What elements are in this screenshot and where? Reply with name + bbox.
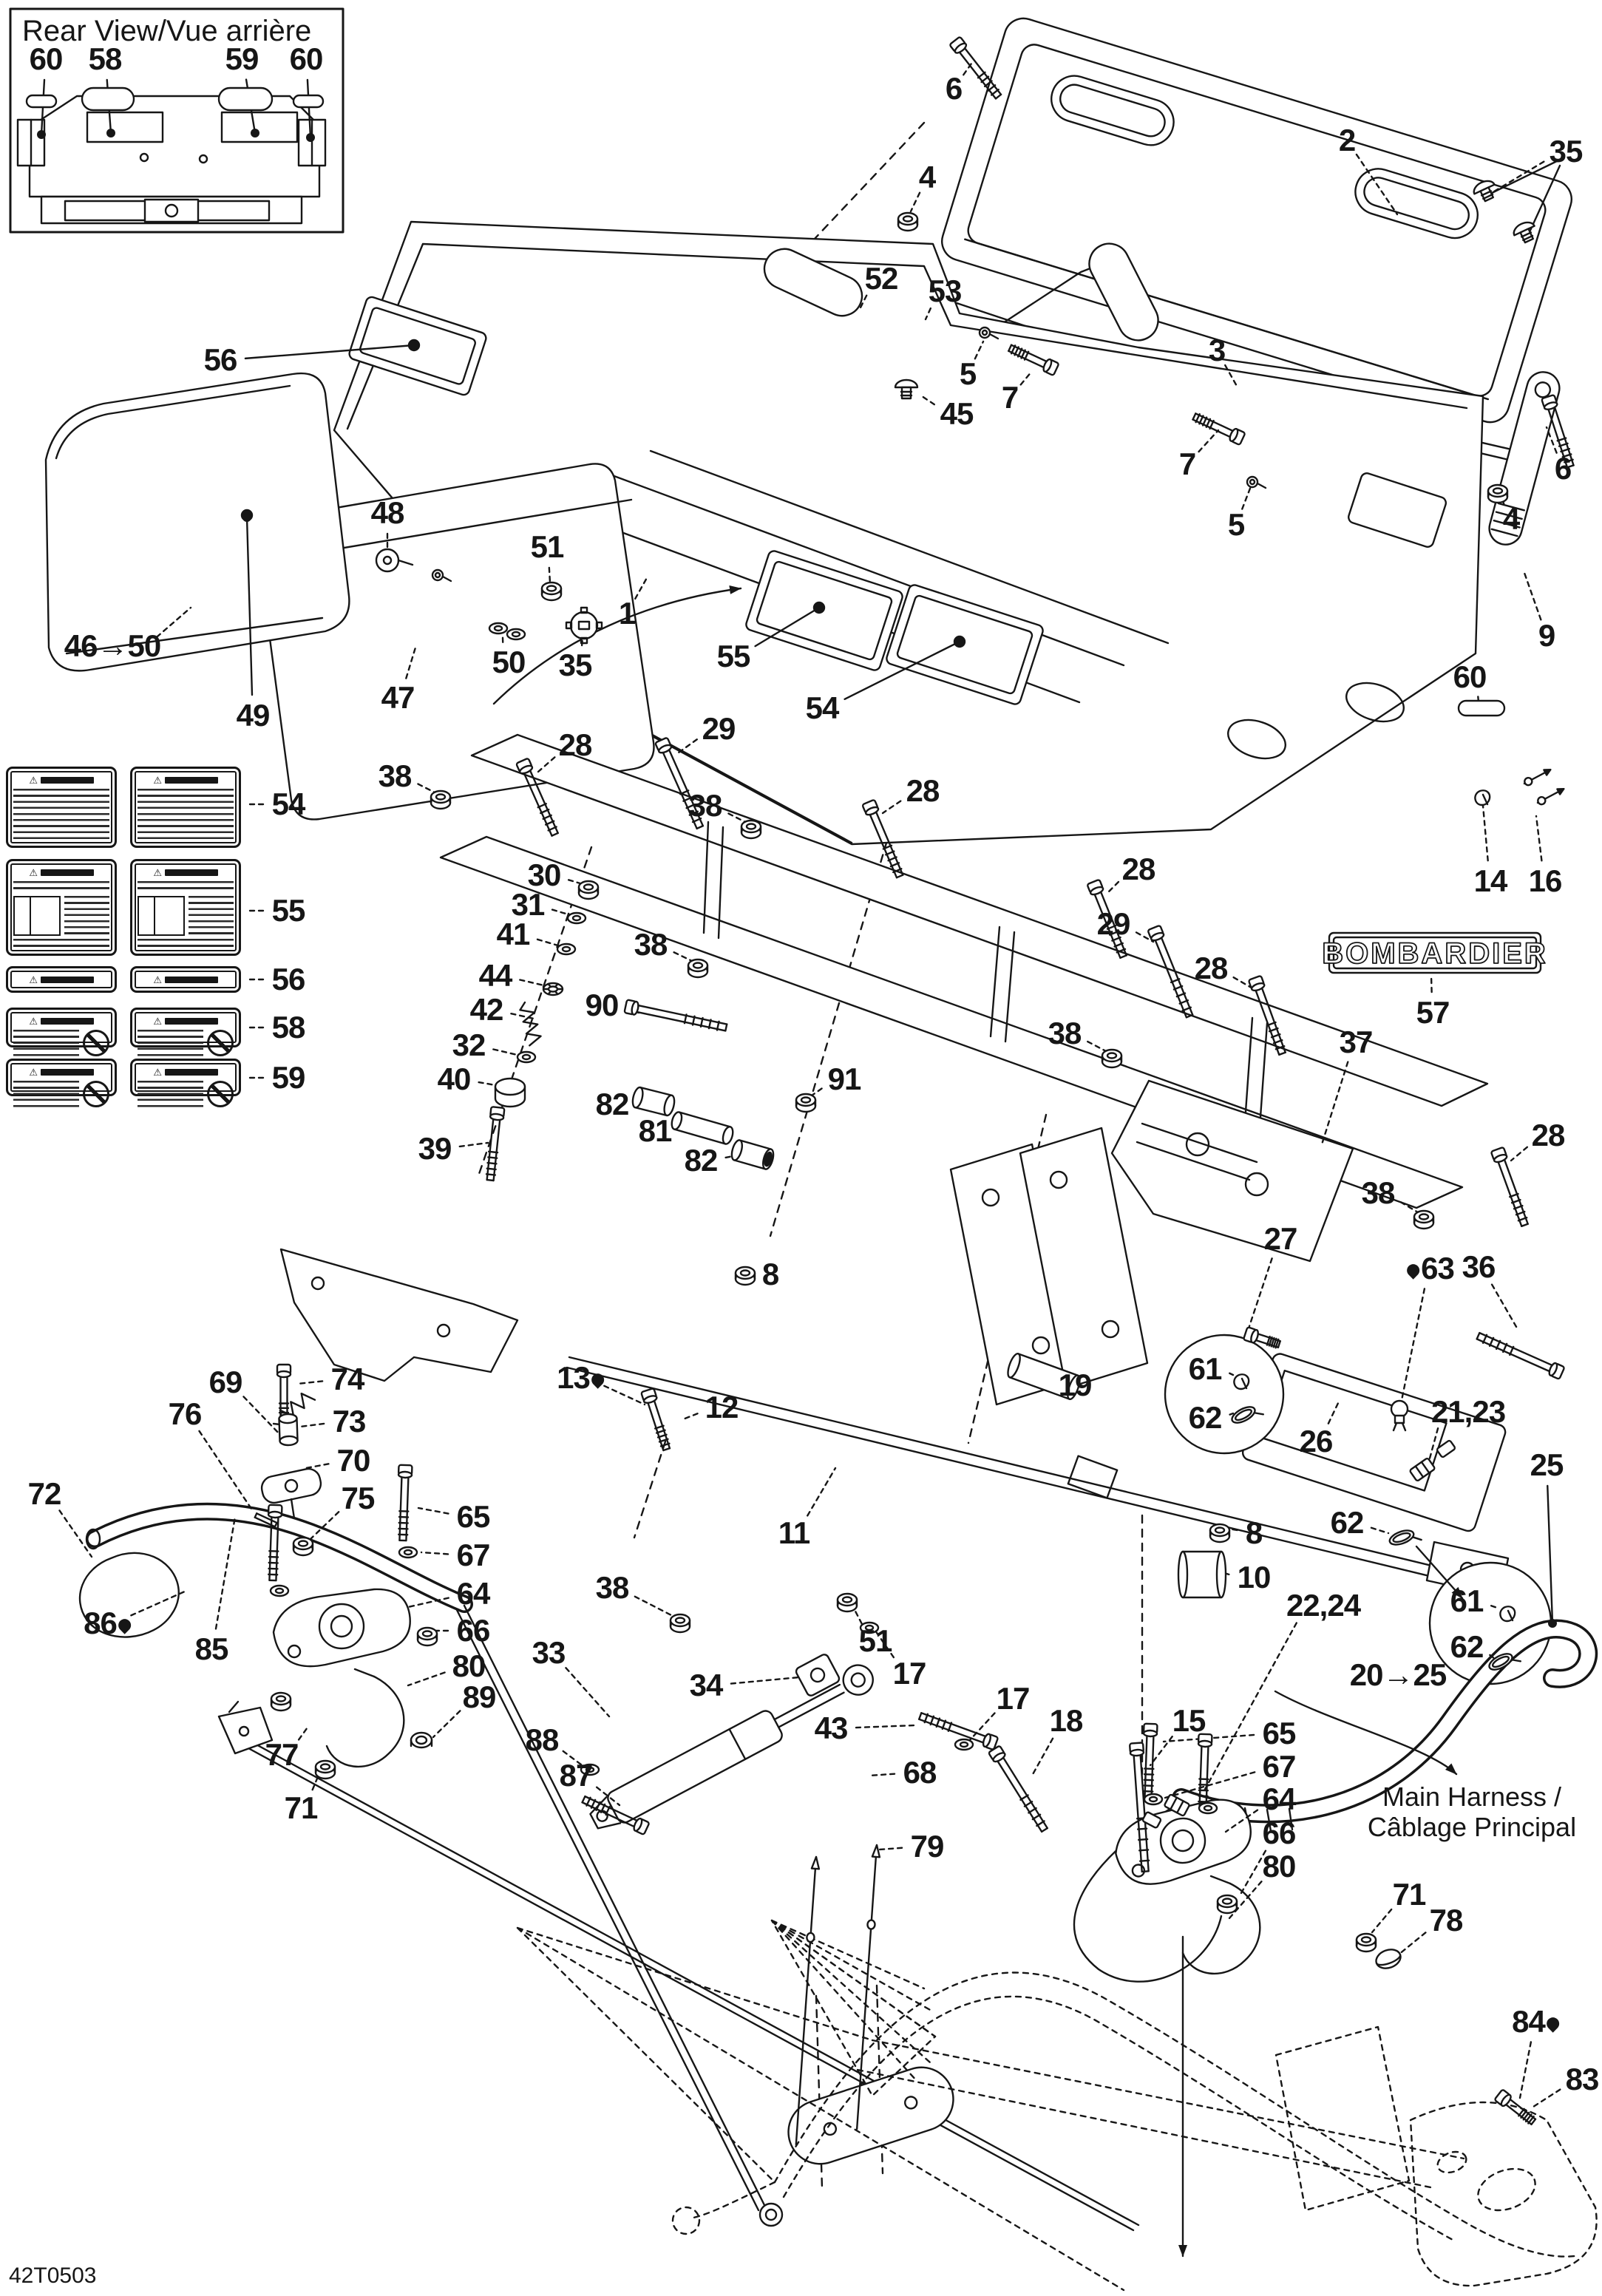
callout-number: 83 — [1566, 2062, 1599, 2096]
callout-71: 71 — [1393, 1879, 1426, 1910]
callout-number: 25 — [1530, 1447, 1564, 1482]
callout-number: 75 — [342, 1481, 375, 1515]
callout-number: 80 — [452, 1648, 486, 1683]
callout-number: 38 — [1362, 1175, 1395, 1210]
callout-59: 59 — [225, 44, 259, 75]
warning-triangle-icon: ⚠ — [153, 1016, 162, 1026]
hw-nut — [796, 1094, 815, 1112]
hw-nut — [316, 1761, 335, 1779]
callout-5: 5 — [960, 359, 976, 390]
leader-dot — [106, 129, 115, 137]
callout-4: 4 — [919, 162, 935, 193]
rack-corner-bracket — [1112, 1081, 1353, 1261]
callout-number: 70 — [337, 1443, 370, 1478]
callout-28: 28 — [559, 730, 592, 761]
lubricant-drop-icon — [1544, 2015, 1561, 2033]
callout-3: 3 — [1209, 335, 1225, 366]
hw-nut — [1488, 485, 1507, 503]
leader-dot — [410, 341, 418, 350]
callout-29: 29 — [702, 713, 736, 744]
callout-number: 27 — [1264, 1221, 1297, 1256]
leader-line — [1524, 573, 1541, 619]
callout-56: 56 — [204, 344, 237, 376]
callout-number: 57 — [1416, 995, 1450, 1030]
callout-38: 38 — [634, 929, 668, 960]
warning-triangle-icon: ⚠ — [29, 1067, 38, 1077]
callout-77: 77 — [265, 1739, 299, 1770]
callout-15: 15 — [1172, 1705, 1206, 1736]
callout-65: 65 — [457, 1501, 490, 1532]
callout-number: 4 — [919, 160, 935, 194]
warning-text-lines — [138, 881, 234, 893]
inset-title: Rear View/Vue arrière — [22, 15, 311, 48]
warning-label-59-fr: ⚠ — [130, 1059, 241, 1096]
leader-line — [635, 1597, 673, 1616]
warning-text-lines — [13, 1030, 79, 1056]
leader-line — [520, 979, 547, 986]
callout-number: 17 — [997, 1681, 1030, 1716]
callout-number: 68 — [903, 1755, 937, 1790]
callout-38: 38 — [379, 761, 412, 792]
callout-number: 41 — [497, 917, 530, 951]
callout-54: 54 — [272, 789, 305, 820]
hw-nut — [671, 1614, 690, 1632]
warning-label-56-fr: ⚠ — [130, 966, 241, 993]
leader-line — [1249, 1258, 1272, 1326]
callout-number: 6 — [1555, 451, 1571, 486]
callout-65: 65 — [1263, 1718, 1296, 1749]
callout-62: 62 — [1189, 1402, 1222, 1433]
lubricant-drop-icon — [115, 1617, 133, 1634]
callout-51: 51 — [859, 1626, 892, 1657]
hw-washer — [399, 1547, 417, 1558]
callout-number: 77 — [265, 1737, 299, 1772]
callout-number: 76 — [169, 1396, 202, 1431]
callout-5: 5 — [1228, 509, 1244, 540]
callout-58: 58 — [89, 44, 122, 75]
callout-number: 63 — [1421, 1251, 1454, 1285]
leader-dot — [242, 513, 251, 522]
callout-number: 1 — [619, 596, 635, 631]
callout-number: 58 — [89, 41, 122, 76]
warning-label-header: ⚠ — [138, 974, 234, 985]
callout-70: 70 — [337, 1445, 370, 1476]
callout-56: 56 — [272, 964, 305, 995]
leader-line — [566, 1668, 609, 1716]
callout-number: 78 — [1430, 1903, 1463, 1937]
callout-number: 7 — [1002, 380, 1018, 415]
callout-45: 45 — [940, 398, 974, 429]
warning-label-56-en: ⚠ — [6, 966, 117, 993]
callout-91: 91 — [828, 1064, 861, 1095]
callout-57: 57 — [1416, 997, 1450, 1028]
warning-label-55-en: ⚠ — [6, 859, 117, 956]
warning-label-59-en: ⚠ — [6, 1059, 117, 1096]
warning-word-bar — [165, 1018, 218, 1025]
leader-line — [880, 1848, 902, 1850]
hw-cyl2 — [730, 1139, 775, 1170]
leader-dot — [815, 603, 824, 612]
leader-line — [1239, 1851, 1266, 1897]
hw-cyl — [631, 1087, 676, 1117]
callout-62: 62 — [1450, 1631, 1484, 1662]
callout-number: 91 — [828, 1062, 861, 1096]
callout-number: 87 — [560, 1758, 593, 1793]
callout-number: 8 — [762, 1257, 778, 1291]
hw-washer — [1199, 1803, 1217, 1813]
callout-number: 59 — [272, 1060, 305, 1095]
callout-64: 64 — [1263, 1784, 1296, 1815]
callout-28: 28 — [1532, 1120, 1565, 1151]
leader-line — [460, 1143, 488, 1147]
callout-number: 52 — [865, 261, 898, 296]
warning-triangle-icon: ⚠ — [153, 775, 162, 785]
leader-line — [674, 952, 692, 961]
callout-number: 8 — [1246, 1515, 1262, 1550]
callout-number: 51 — [859, 1623, 892, 1658]
callout-number: 85 — [195, 1631, 228, 1666]
warning-word-bar — [41, 1018, 94, 1025]
callout-13: 13 — [557, 1362, 605, 1393]
callout-27: 27 — [1264, 1223, 1297, 1254]
leader-line — [1536, 816, 1541, 860]
callout-17: 17 — [997, 1683, 1030, 1714]
prohibition-pictogram — [83, 1030, 109, 1056]
leader-line — [408, 1672, 445, 1685]
callout-41: 41 — [497, 919, 530, 950]
callout-number: 9 — [1538, 618, 1555, 653]
callout-number: 20→25 — [1350, 1657, 1446, 1692]
callout-number: 59 — [225, 41, 259, 76]
leader-line — [1322, 1062, 1348, 1144]
callout-number: 19 — [1059, 1368, 1092, 1402]
callout-number: 62 — [1331, 1505, 1364, 1540]
hw-nut — [1210, 1524, 1229, 1542]
warning-triangle-icon: ⚠ — [153, 1067, 162, 1077]
callout-11: 11 — [778, 1518, 810, 1549]
hw-nut — [1218, 1895, 1237, 1913]
hw-cyl — [1178, 1552, 1226, 1597]
hw-bolt — [1494, 2089, 1537, 2127]
callout-number: 61 — [1189, 1351, 1222, 1386]
callout-66: 66 — [1263, 1818, 1296, 1849]
callout-82: 82 — [596, 1089, 629, 1120]
callout-28: 28 — [1122, 854, 1155, 885]
callout-31: 31 — [512, 889, 545, 920]
hw-spring — [518, 1001, 542, 1046]
callout-number: 65 — [457, 1499, 490, 1534]
leader-dot — [37, 130, 46, 139]
callout-21,23: 21,23 — [1431, 1396, 1505, 1427]
leader-dot — [955, 637, 964, 646]
callout-43: 43 — [815, 1713, 848, 1744]
callout-7: 7 — [1179, 449, 1195, 480]
callout-number: 13 — [557, 1360, 590, 1395]
warning-word-bar — [165, 777, 218, 784]
leader-line — [1402, 1288, 1425, 1400]
leader-line — [731, 1677, 807, 1684]
callout-22,24: 22,24 — [1286, 1590, 1360, 1621]
callout-number: 71 — [1393, 1877, 1426, 1912]
callout-74: 74 — [331, 1364, 364, 1395]
hw-bolt — [988, 1745, 1051, 1833]
detail-circle-1 — [1165, 1335, 1283, 1453]
warning-triangle-icon: ⚠ — [153, 975, 162, 985]
callout-number: 64 — [1263, 1782, 1296, 1816]
callout-87: 87 — [560, 1760, 593, 1791]
warning-word-bar — [165, 1069, 218, 1076]
prohibition-pictogram — [207, 1030, 234, 1056]
hw-strip — [82, 88, 134, 110]
leader-line — [421, 1552, 448, 1554]
warning-word-bar — [165, 869, 218, 876]
warning-spec-table — [13, 896, 61, 936]
callout-54: 54 — [806, 693, 839, 724]
callout-number: 50 — [492, 645, 526, 679]
callout-60: 60 — [290, 44, 323, 75]
leader-line — [244, 1396, 282, 1437]
callout-number: 32 — [452, 1028, 486, 1062]
main-harness-note: Main Harness / Câblage Principal — [1298, 1782, 1602, 1842]
hw-lockw — [543, 983, 563, 995]
hw-bolt — [1476, 1330, 1565, 1379]
bombardier-decal-text: BOMBARDIER — [1322, 937, 1548, 970]
callout-89: 89 — [463, 1682, 496, 1713]
callout-62: 62 — [1331, 1507, 1364, 1538]
callout-number: 82 — [685, 1143, 718, 1178]
hw-block — [795, 1653, 841, 1697]
callout-number: 56 — [204, 342, 237, 377]
callout-number: 36 — [1462, 1249, 1496, 1284]
callout-number: 28 — [1532, 1118, 1565, 1152]
callout-66: 66 — [457, 1615, 490, 1646]
callout-number: 28 — [1122, 852, 1155, 886]
hw-nut — [431, 791, 450, 809]
callout-number: 46→50 — [64, 628, 160, 663]
callout-number: 4 — [1503, 501, 1519, 536]
callout-10: 10 — [1238, 1562, 1271, 1593]
callout-58: 58 — [272, 1012, 305, 1043]
callout-number: 67 — [457, 1538, 490, 1572]
callout-number: 60 — [290, 41, 323, 76]
warning-body — [138, 1030, 234, 1056]
warning-label-header: ⚠ — [13, 1016, 109, 1027]
warning-label-header: ⚠ — [138, 867, 234, 878]
callout-32: 32 — [452, 1030, 486, 1061]
callout-55: 55 — [717, 641, 750, 672]
callout-number: 28 — [906, 773, 940, 808]
warning-text-lines — [13, 939, 109, 949]
callout-51: 51 — [531, 531, 564, 563]
leader-line — [911, 193, 920, 211]
hw-cyl — [670, 1111, 734, 1145]
warning-label-header: ⚠ — [13, 775, 109, 786]
callout-86: 86 — [84, 1608, 132, 1639]
callout-number: 55 — [717, 639, 750, 673]
hw-clip — [1475, 790, 1490, 805]
warning-triangle-icon: ⚠ — [153, 868, 162, 877]
hw-clip — [1234, 1374, 1249, 1389]
callout-6: 6 — [946, 73, 962, 104]
hw-washer — [271, 1586, 288, 1596]
leader-line — [216, 1517, 235, 1628]
callout-number: 39 — [418, 1131, 452, 1166]
warning-triangle-icon: ⚠ — [29, 1016, 38, 1026]
hw-rivet — [1536, 786, 1566, 806]
hw-nut — [1414, 1211, 1433, 1229]
callout-64: 64 — [457, 1578, 490, 1609]
warning-table-row — [13, 896, 109, 936]
callout-number: 35 — [1550, 134, 1583, 169]
warning-label-header: ⚠ — [13, 974, 109, 985]
callout-number: 12 — [705, 1390, 739, 1424]
leader-line — [1431, 976, 1432, 992]
callout-26: 26 — [1300, 1426, 1333, 1457]
callout-number: 2 — [1339, 123, 1355, 157]
leader-line — [1087, 1042, 1106, 1051]
warning-triangle-icon: ⚠ — [29, 975, 38, 985]
callout-19: 19 — [1059, 1370, 1092, 1401]
callout-12: 12 — [705, 1392, 739, 1423]
callout-53: 53 — [929, 276, 962, 307]
callout-number: 54 — [272, 787, 305, 821]
leader-line — [493, 1049, 520, 1056]
callout-46→50: 46→50 — [64, 631, 160, 662]
warning-label-55-fr: ⚠ — [130, 859, 241, 956]
warning-word-bar — [41, 1069, 94, 1076]
leader-dot — [251, 129, 259, 137]
callout-60: 60 — [30, 44, 63, 75]
callout-47: 47 — [381, 682, 415, 713]
callout-50: 50 — [492, 647, 526, 678]
main-harness-note-line2: Câblage Principal — [1298, 1812, 1602, 1842]
hw-washer — [489, 623, 507, 634]
callout-number: 29 — [702, 711, 736, 746]
callout-number: 53 — [929, 274, 962, 308]
callout-60: 60 — [1453, 662, 1487, 693]
hw-strip — [219, 88, 272, 110]
hw-nut — [271, 1693, 291, 1711]
callout-number: 49 — [237, 698, 270, 733]
support-plates — [951, 1128, 1147, 1405]
warning-text-lines — [138, 1030, 203, 1056]
callout-67: 67 — [457, 1540, 490, 1571]
leader-line — [1372, 1909, 1391, 1932]
callout-number: 7 — [1179, 446, 1195, 481]
warning-body — [13, 1030, 109, 1056]
leader-line — [1399, 1932, 1425, 1954]
callout-55: 55 — [272, 895, 305, 926]
callout-38: 38 — [596, 1572, 629, 1603]
hw-cyl — [279, 1414, 297, 1446]
hw-washer — [955, 1739, 973, 1750]
callout-number: 38 — [596, 1570, 629, 1605]
callout-number: 35 — [559, 648, 592, 682]
leader-line — [807, 1468, 835, 1515]
callout-16: 16 — [1529, 866, 1562, 897]
warning-word-bar — [41, 869, 94, 876]
warning-body — [13, 1081, 109, 1107]
leader-line — [297, 1381, 322, 1384]
callout-number: 10 — [1238, 1560, 1271, 1594]
callout-34: 34 — [690, 1670, 723, 1701]
callout-number: 37 — [1340, 1025, 1373, 1059]
hw-grommet — [411, 1733, 432, 1748]
hw-eyelet — [760, 2204, 782, 2226]
callout-number: 15 — [1172, 1703, 1206, 1738]
hw-bolt — [1491, 1147, 1531, 1228]
callout-40: 40 — [438, 1064, 471, 1095]
callout-17: 17 — [893, 1658, 926, 1689]
callout-number: 29 — [1097, 906, 1130, 941]
callout-number: 38 — [379, 758, 412, 793]
callout-49: 49 — [237, 700, 270, 731]
warning-text-lines — [64, 896, 109, 936]
callout-number: 6 — [946, 71, 962, 106]
leader-line — [869, 1774, 895, 1776]
callout-number: 47 — [381, 680, 415, 715]
warning-text-lines — [13, 789, 109, 841]
callout-71: 71 — [285, 1793, 318, 1824]
callout-number: 21,23 — [1431, 1394, 1505, 1429]
callout-number: 22,24 — [1286, 1588, 1360, 1623]
callout-number: 90 — [586, 988, 619, 1022]
callout-number: 55 — [272, 893, 305, 928]
sheet-code: 42T0503 — [9, 2263, 96, 2289]
callout-1: 1 — [619, 598, 635, 629]
leader-line — [604, 1386, 645, 1405]
prohibition-pictogram — [83, 1081, 109, 1107]
callout-number: 89 — [463, 1679, 496, 1714]
hw-bolt — [1196, 1734, 1212, 1808]
callout-61: 61 — [1189, 1354, 1222, 1385]
callout-18: 18 — [1050, 1705, 1083, 1736]
callout-85: 85 — [195, 1634, 228, 1665]
callout-number: 64 — [457, 1576, 490, 1611]
hw-cap — [1374, 1946, 1403, 1971]
hw-nut — [898, 213, 917, 231]
callout-number: 16 — [1529, 863, 1562, 898]
callout-number: 38 — [634, 927, 668, 962]
callout-4: 4 — [1503, 503, 1519, 534]
leader-line — [200, 1431, 253, 1511]
warning-triangle-icon: ⚠ — [29, 868, 38, 877]
lubricant-drop-icon — [1405, 1262, 1422, 1280]
warning-label-header: ⚠ — [13, 867, 109, 878]
callout-38: 38 — [1048, 1018, 1082, 1049]
callout-number: 3 — [1209, 333, 1225, 367]
parts-diagram-page: BOMBARDIER Rear View/Vue arrière Main Ha… — [0, 0, 1602, 2296]
lubricant-drop-icon — [588, 1371, 606, 1389]
callout-number: 66 — [457, 1613, 490, 1648]
leader-line — [1107, 882, 1119, 893]
hw-bolt — [266, 1505, 282, 1581]
warning-text-lines — [13, 881, 109, 893]
callout-number: 71 — [285, 1790, 318, 1825]
callout-67: 67 — [1263, 1751, 1296, 1782]
leader-line — [1492, 1285, 1518, 1331]
hw-bolt — [396, 1465, 413, 1541]
callout-78: 78 — [1430, 1905, 1463, 1936]
main-harness-note-line1: Main Harness / — [1298, 1782, 1602, 1812]
warning-label-58-en: ⚠ — [6, 1008, 117, 1047]
hw-nut — [579, 881, 598, 899]
callout-9: 9 — [1538, 620, 1555, 651]
callout-number: 82 — [596, 1087, 629, 1121]
hw-washer — [557, 944, 575, 954]
prohibition-pictogram — [207, 1081, 234, 1107]
hw-rivet — [1523, 767, 1552, 787]
